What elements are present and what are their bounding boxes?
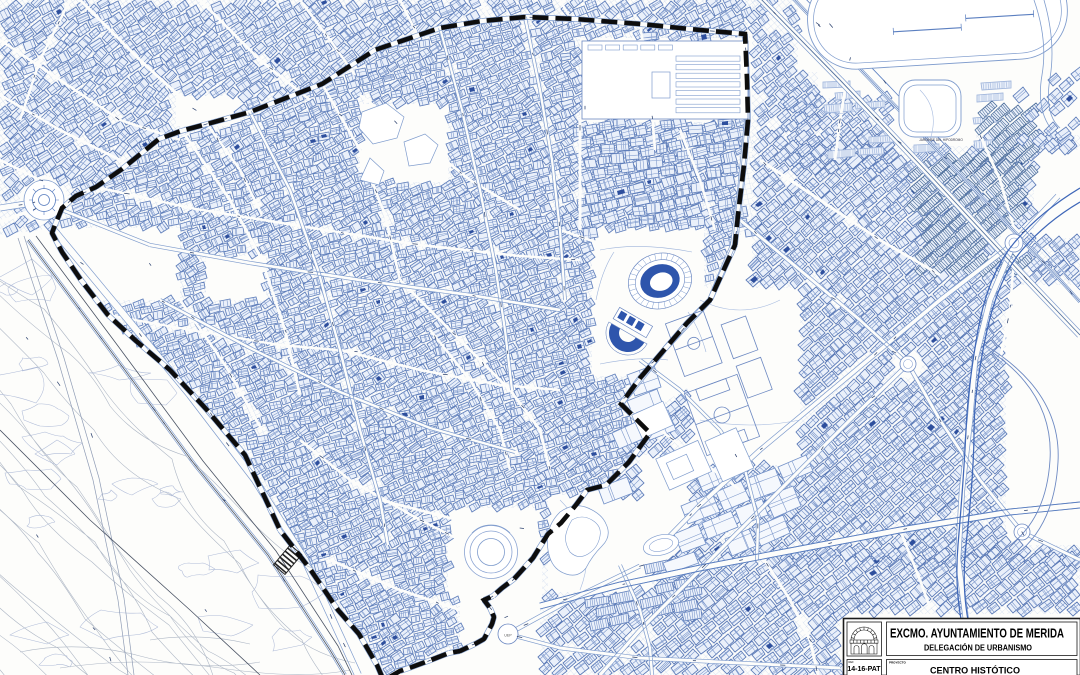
svg-text:EXCMO. AYUNTAMIENTO DE MERIDA: EXCMO. AYUNTAMIENTO DE MERIDA xyxy=(890,627,1064,641)
svg-text:CENTRO HISTÓTICO: CENTRO HISTÓTICO xyxy=(930,665,1020,675)
svg-text:14-16-PAT: 14-16-PAT xyxy=(847,666,881,673)
svg-text:JARDINES DEL HIPODROMO: JARDINES DEL HIPODROMO xyxy=(919,138,963,142)
svg-text:DELEGACIÓN DE URBANISMO: DELEGACIÓN DE URBANISMO xyxy=(924,644,1032,653)
svg-text:UEP: UEP xyxy=(504,634,512,638)
svg-text:PROYECTO: PROYECTO xyxy=(889,661,906,665)
svg-text:REF: REF xyxy=(849,660,855,664)
